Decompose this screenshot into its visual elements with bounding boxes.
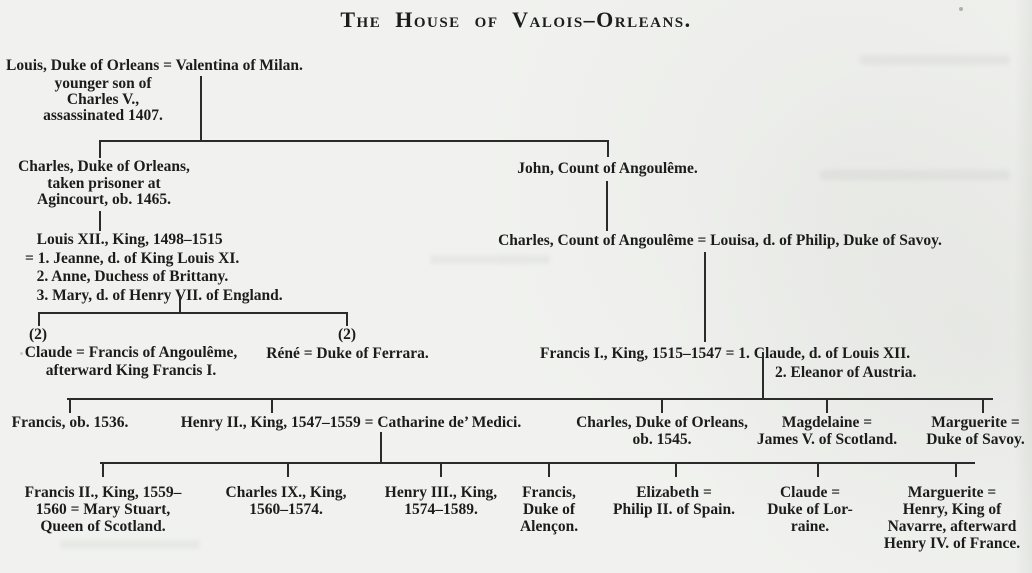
node-louis-orleans-note: younger son of Charles V., assassinated … — [18, 76, 188, 124]
node-marguerite-duke-of-savoy: Marguerite = Duke of Savoy. — [898, 414, 1032, 448]
node-francis-i: Francis I., King, 1515–1547 = 1. Claude,… — [540, 345, 910, 362]
node-charles-count-of-angouleme-louisa: Charles, Count of Angoulême = Louisa, d.… — [420, 232, 1020, 249]
connector-drop-magdelaine — [826, 400, 828, 413]
node-claude-marriage-order: (2) — [23, 326, 53, 343]
connector-gen6-sibling-line — [100, 462, 975, 464]
node-francis-duke-of-alencon: Francis, Duke of Alençon. — [503, 484, 595, 535]
node-francis-i-second-wife: 2. Eleanor of Austria. — [775, 364, 916, 381]
connector-gen5-sibling-line — [67, 398, 993, 400]
connector-drop-henry-ii — [271, 400, 273, 413]
node-rene-marriage-order: (2) — [332, 326, 362, 343]
node-elizabeth-philip-ii: Elizabeth = Philip II. of Spain. — [596, 484, 752, 518]
connector-drop-claude-lorraine — [817, 464, 819, 477]
node-charles-ix: Charles IX., King, 1560–1574. — [200, 484, 372, 518]
node-francis-ii-mary-stuart: Francis II., King, 1559– 1560 = Mary Stu… — [3, 484, 203, 535]
connector-drop-john-angouleme — [607, 142, 609, 157]
connector-drop-francis-1536 — [69, 400, 71, 413]
connector-drop-charles-ix — [287, 464, 289, 477]
node-louis-duke-of-orleans-valentina: Louis, Duke of Orleans = Valentina of Mi… — [6, 57, 303, 74]
connector-henry-ii-down — [380, 432, 382, 463]
connector-charles-to-louis-xii — [99, 211, 101, 231]
node-charles-duke-of-orleans: Charles, Duke of Orleans, taken prisoner… — [0, 159, 208, 209]
connector-drop-henry-iii — [440, 464, 442, 477]
scan-bleedthrough — [60, 540, 200, 549]
node-louis-xii: Louis XII., King, 1498–1515 = 1. Jeanne,… — [25, 231, 283, 305]
connector-gen4-sibling-line — [38, 312, 348, 314]
scan-bleedthrough — [820, 170, 1010, 180]
node-john-count-of-angouleme: John, Count of Angoulême. — [495, 160, 720, 177]
scan-speck — [959, 7, 963, 11]
connector-drop-claude — [38, 314, 40, 326]
node-henry-iii: Henry III., King, 1574–1589. — [368, 484, 514, 518]
connector-louis-xii-down — [179, 295, 181, 313]
connector-drop-rene — [346, 314, 348, 326]
scan-bleedthrough — [860, 55, 1010, 65]
page-title: The House of Valois–Orleans. — [0, 7, 1032, 33]
node-henry-ii-catharine: Henry II., King, 1547–1559 = Catharine d… — [148, 414, 554, 431]
node-claude-francis-of-angouleme: Claude = Francis of Angoulême, afterward… — [2, 344, 260, 379]
node-francis-ob-1536: Francis, ob. 1536. — [0, 414, 140, 431]
scan-speck — [20, 352, 23, 355]
connector-drop-francis-ii — [102, 464, 104, 477]
scanned-genealogy-page: The House of Valois–Orleans. Louis, Duke… — [0, 0, 1032, 573]
node-charles-duke-of-orleans-1545: Charles, Duke of Orleans, ob. 1545. — [558, 414, 766, 448]
connector-drop-francis-alencon — [548, 464, 550, 477]
node-marguerite-henry-of-navarre: Marguerite = Henry, King of Navarre, aft… — [866, 484, 1032, 552]
node-claude-duke-of-lorraine: Claude = Duke of Lor- raine. — [756, 484, 864, 535]
node-magdelaine-james-v: Magdelaine = James V. of Scotland. — [737, 414, 917, 448]
scan-bleedthrough — [430, 255, 550, 264]
connector-drop-elizabeth — [675, 464, 677, 477]
connector-john-to-charles-angouleme — [606, 181, 608, 231]
connector-drop-charles-orleans — [99, 142, 101, 158]
connector-drop-marguerite-navarre — [955, 464, 957, 477]
connector-drop-charles-1545 — [661, 400, 663, 413]
connector-drop-marguerite-savoy — [982, 400, 984, 413]
node-rene-duke-of-ferrara: Réné = Duke of Ferrara. — [240, 345, 455, 362]
connector-angouleme-to-francis-i — [704, 252, 706, 342]
connector-gen2-sibling-line — [99, 140, 609, 142]
connector-francis-i-down — [762, 352, 764, 399]
connector-gen1-down — [200, 76, 202, 140]
